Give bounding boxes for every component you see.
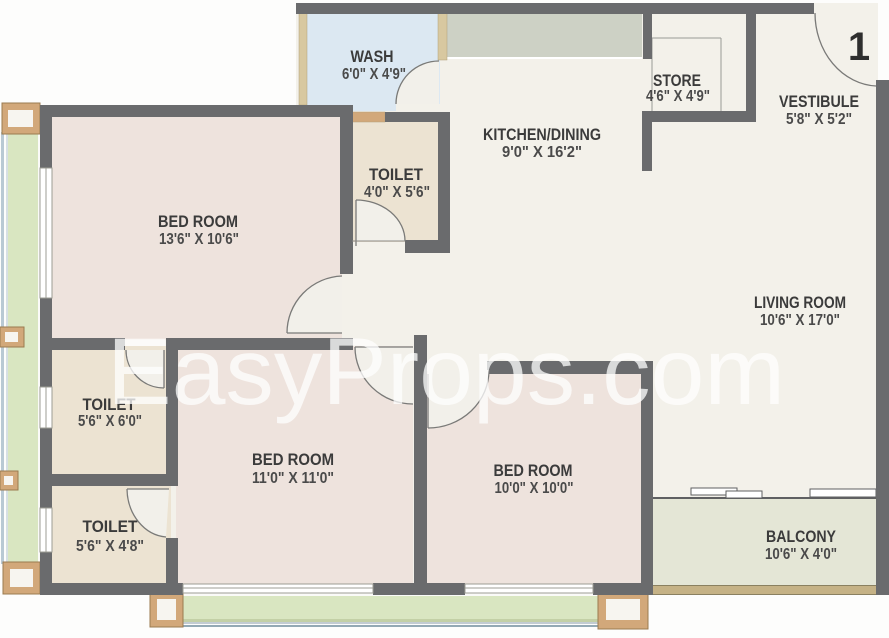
svg-text:6'0" X 4'9": 6'0" X 4'9": [342, 66, 406, 83]
svg-text:10'0" X 10'0": 10'0" X 10'0": [495, 480, 574, 497]
svg-text:EasyProps.com: EasyProps.com: [107, 319, 785, 425]
svg-text:11'0" X 11'0": 11'0" X 11'0": [252, 470, 334, 487]
svg-text:LIVING ROOM: LIVING ROOM: [754, 294, 846, 312]
svg-text:5'8" X 5'2": 5'8" X 5'2": [786, 111, 852, 128]
svg-text:VESTIBULE: VESTIBULE: [779, 93, 859, 111]
svg-text:BED ROOM: BED ROOM: [494, 462, 573, 480]
svg-text:WASH: WASH: [351, 48, 394, 66]
svg-text:13'6" X 10'6": 13'6" X 10'6": [159, 231, 239, 248]
svg-text:10'6" X 4'0": 10'6" X 4'0": [765, 546, 837, 563]
svg-text:5'6" X 4'8": 5'6" X 4'8": [76, 538, 144, 555]
svg-text:BED ROOM: BED ROOM: [252, 451, 334, 469]
svg-text:BALCONY: BALCONY: [766, 528, 836, 546]
svg-text:1: 1: [848, 25, 870, 69]
svg-text:4'0" X 5'6": 4'0" X 5'6": [364, 184, 430, 201]
svg-text:BED ROOM: BED ROOM: [158, 213, 238, 231]
svg-text:TOILET: TOILET: [369, 166, 423, 184]
svg-text:KITCHEN/DINING: KITCHEN/DINING: [483, 126, 601, 144]
svg-text:4'6" X 4'9": 4'6" X 4'9": [646, 88, 710, 105]
svg-text:9'0" X 16'2": 9'0" X 16'2": [502, 144, 582, 161]
svg-text:TOILET: TOILET: [83, 518, 138, 536]
